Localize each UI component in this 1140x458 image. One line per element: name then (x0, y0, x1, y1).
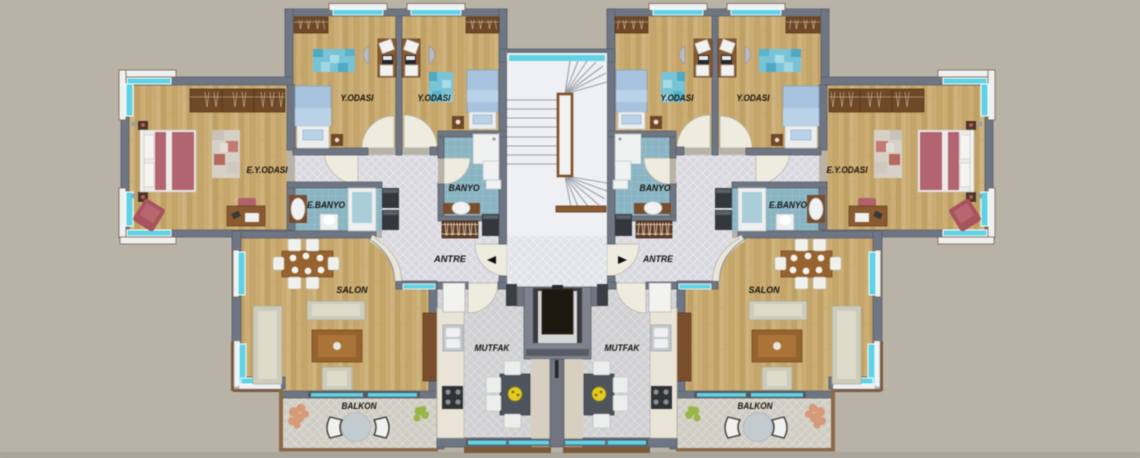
svg-text:E.Y.ODASI: E.Y.ODASI (247, 165, 289, 175)
svg-text:ANTRE: ANTRE (433, 254, 467, 264)
svg-text:BALKON: BALKON (738, 401, 774, 411)
svg-text:E.Y.ODASI: E.Y.ODASI (827, 165, 869, 175)
svg-text:Y.ODASI: Y.ODASI (737, 93, 771, 103)
svg-text:E.BANYO: E.BANYO (769, 200, 807, 210)
svg-text:MUTFAK: MUTFAK (475, 343, 511, 353)
svg-text:SALON: SALON (337, 285, 369, 295)
svg-text:SALON: SALON (749, 285, 781, 295)
svg-text:Y.ODASI: Y.ODASI (661, 93, 695, 103)
svg-text:Y.ODASI: Y.ODASI (418, 93, 452, 103)
svg-text:BANYO: BANYO (640, 183, 671, 193)
svg-text:BALKON: BALKON (342, 401, 378, 411)
svg-text:E.BANYO: E.BANYO (307, 200, 345, 210)
svg-text:Y.ODASI: Y.ODASI (341, 93, 375, 103)
svg-text:MUTFAK: MUTFAK (605, 343, 641, 353)
svg-text:BANYO: BANYO (449, 183, 480, 193)
svg-text:ANTRE: ANTRE (642, 254, 674, 264)
